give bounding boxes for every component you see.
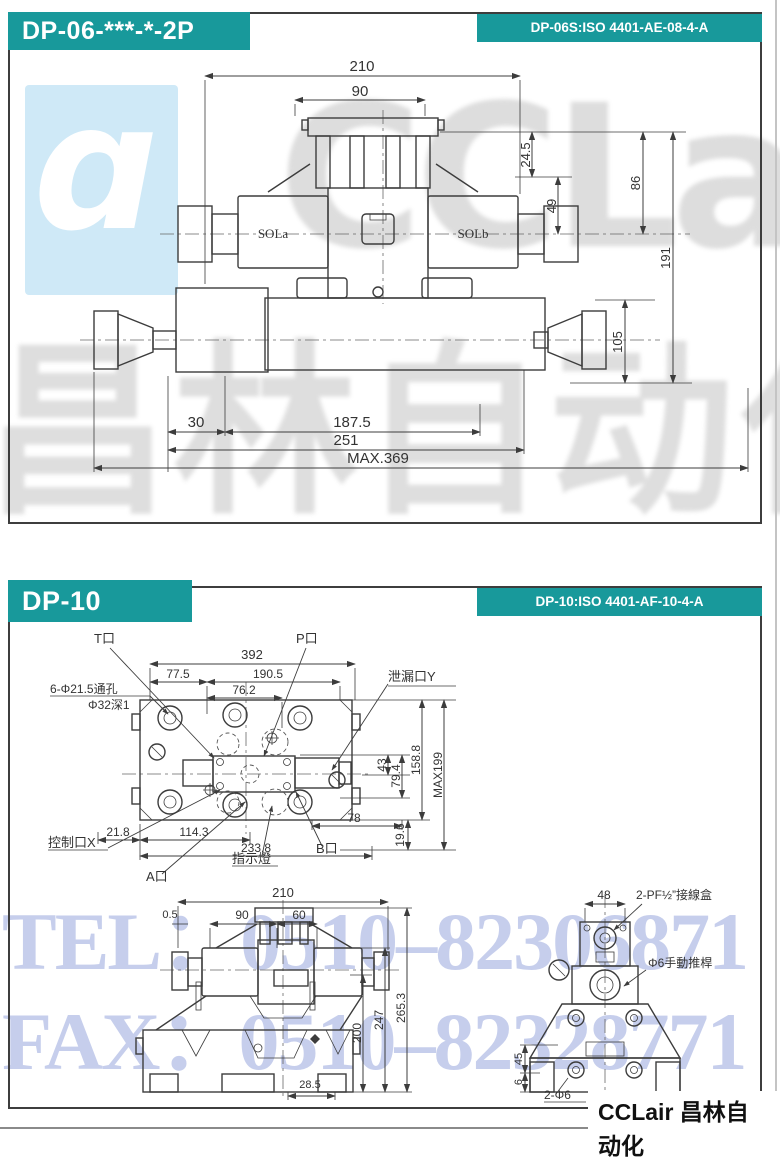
dp10-dim-78: 78 [347,811,361,825]
dp10-dim-79-4: 79.4 [389,764,403,788]
dp10-dim-190-5: 190.5 [253,667,283,681]
dp06-dim-h-total: 191 [658,247,673,269]
dp10-dim-392: 392 [241,647,263,662]
dp10-dim-21-8: 21.8 [106,825,130,839]
dp10-dim-77-5: 77.5 [166,667,190,681]
dp06-dim-len-max: MAX.369 [347,450,409,467]
page-right-edge [775,0,777,1134]
dp10-label-leak-y: 泄漏口Y [388,669,436,684]
dp06-label-sol-a: SOLa [258,226,289,241]
dp10-side-view: 48 2-PF½”接線盒 Φ6手動推桿 45 6 2-Φ6 [513,887,712,1102]
dp10-label-control-x: 控制口X [48,835,96,850]
dp10-dim-114-3: 114.3 [179,825,208,839]
dp10-title: DP-10 [8,580,192,622]
dp10-dim-76-2: 76.2 [232,683,256,697]
dp10-technical-drawing: T口 P口 泄漏口Y 6-Φ21.5通孔 Φ32深1 控制口X A口 指示燈 B… [10,618,762,1105]
dp10-side-texts: 48 2-PF½”接線盒 Φ6手動推桿 45 6 2-Φ6 [513,887,712,1102]
dp10-top-view: T口 P口 泄漏口Y 6-Φ21.5通孔 Φ32深1 控制口X A口 指示燈 B… [48,631,456,884]
dp10-label-feet-holes: 2-Φ6 [544,1088,571,1102]
dp10-dim-45: 45 [513,1053,525,1065]
dp10-dim-6: 6 [513,1079,525,1085]
dp06-dim-h-lower: 105 [610,331,625,353]
dp06-centerlines [80,110,690,340]
dp10-label-port-a: A口 [146,869,168,884]
dp06-dim-h-sol: 49 [544,199,559,213]
dp10-dim-max199: MAX199 [431,752,445,798]
dp06-title: DP-06-***-*-2P [8,12,250,50]
dp10-dim-0-5: 0.5 [162,909,177,921]
dp06-dim-len-offset: 30 [188,414,205,431]
dp10-front-manifold [136,1030,360,1092]
dp10-front-view: 210 0.5 90 60 200 247 265.3 28.5 [136,885,412,1100]
dp06-dim-width-top: 90 [352,83,369,100]
dp06-dim-len-body: 187.5 [333,414,371,431]
dp10-dim-210: 210 [272,885,294,900]
dp10-dim-28-5: 28.5 [299,1079,320,1091]
dp10-label-port-b: B口 [316,841,338,856]
dp10-valve-plan [183,729,351,815]
dp06-technical-drawing: 210 90 SOLa SOLb 24.5 49 86 105 191 30 1… [10,52,762,520]
dp06-dim-width-total: 210 [349,58,374,75]
dp10-dim-43: 43 [375,758,389,772]
dp10-label-through-holes: 6-Φ21.5通孔 [50,682,118,696]
dp10-label-junction-box: 2-PF½”接線盒 [636,887,712,902]
dp10-front-texts: 210 0.5 90 60 200 247 265.3 28.5 [162,885,408,1091]
dp10-front-valve [156,908,389,1030]
dp10-dim-233-8: 233.8 [241,841,271,855]
dp06-standard-badge: DP-06S:ISO 4401-AE-08-4-A [477,14,762,42]
dp10-label-hole-depth: Φ32深1 [88,698,130,712]
dp10-dim-90: 90 [235,908,249,922]
dp10-standard-badge: DP-10:ISO 4401-AF-10-4-A [477,588,762,616]
dp10-dim-200: 200 [350,1023,364,1043]
dp10-label-port-p: P口 [296,631,318,646]
dp06-dim-len-valve: 251 [333,432,358,449]
dp10-dim-158-8: 158.8 [409,745,423,775]
dp10-top-texts: T口 P口 泄漏口Y 6-Φ21.5通孔 Φ32深1 控制口X A口 指示燈 B… [48,631,445,884]
dp06-dim-h-upper: 86 [628,176,643,190]
dp06-dim-h-top: 24.5 [518,142,533,167]
dp10-dim-48: 48 [597,888,611,902]
dp06-texts: 210 90 SOLa SOLb 24.5 49 86 105 191 30 1… [188,58,673,467]
dp10-dim-60: 60 [292,908,306,922]
footer-brand: CCLair 昌林自动化 [588,1091,780,1163]
dp10-label-port-t: T口 [94,631,115,646]
dp10-dim-247: 247 [372,1010,386,1030]
dp10-dim-265-3: 265.3 [394,993,408,1023]
dp10-label-push-rod: Φ6手動推桿 [648,955,712,970]
dp10-dim-19-6: 19.6 [393,823,407,847]
dp06-label-sol-b: SOLb [457,226,488,241]
